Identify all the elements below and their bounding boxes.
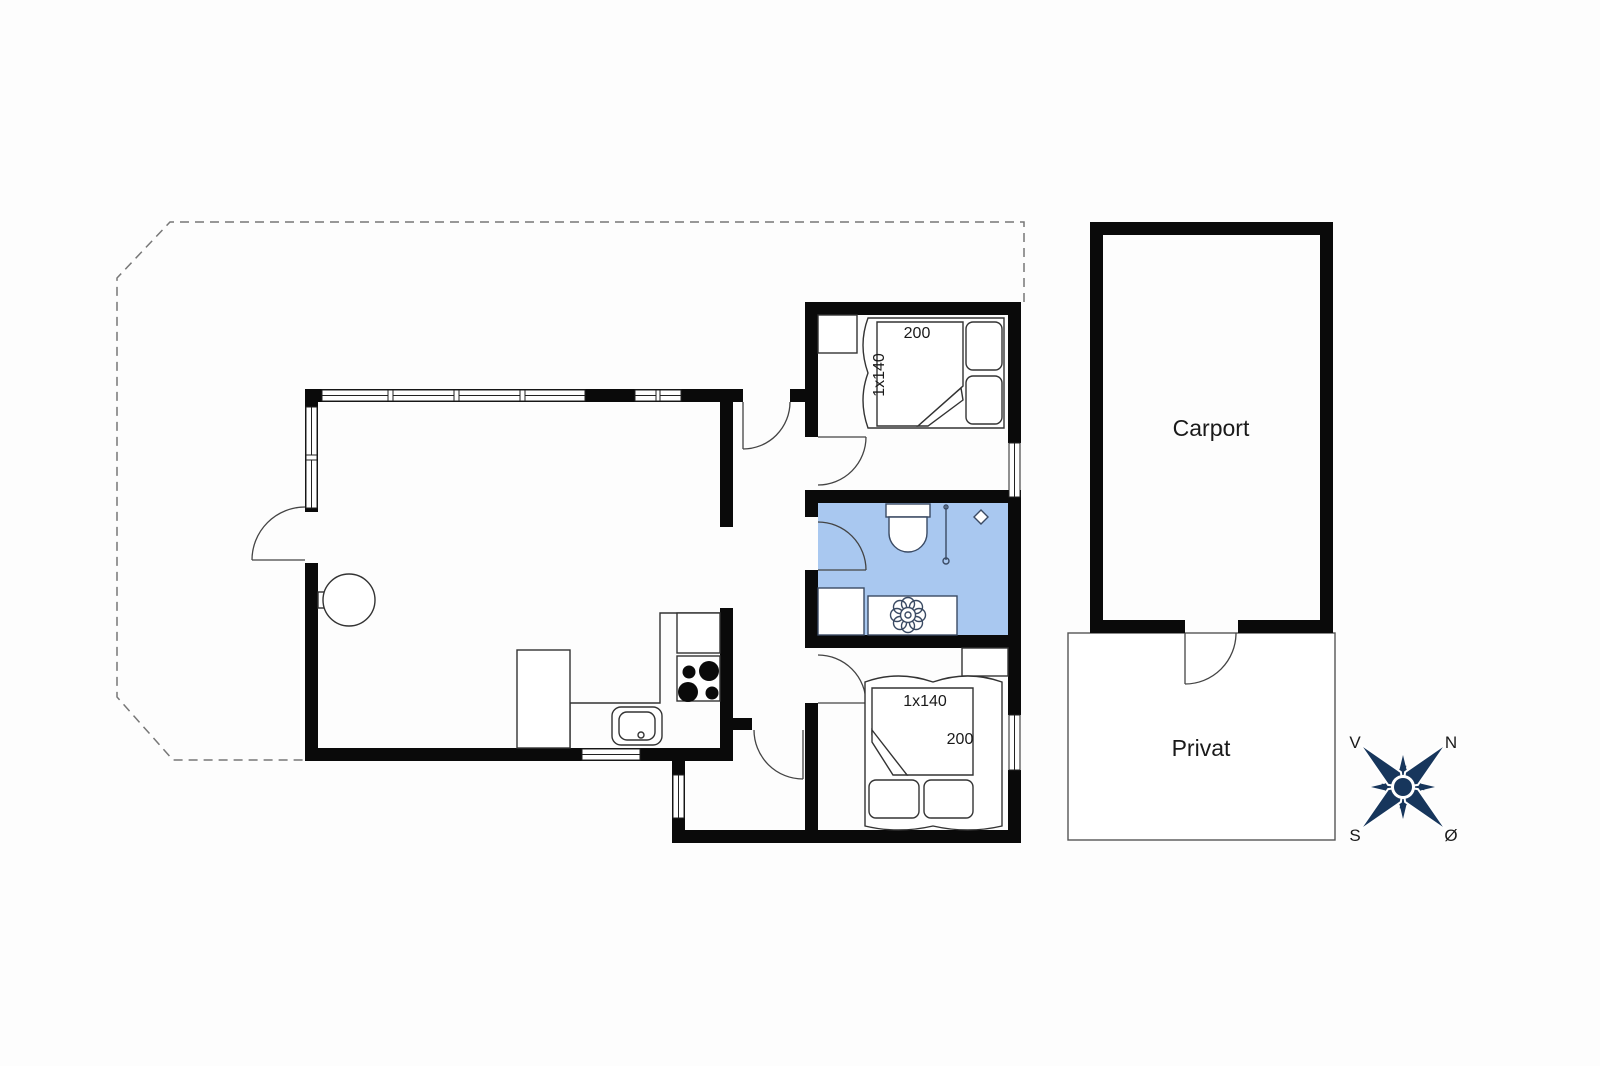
wall-segment (1090, 222, 1103, 633)
shelf (962, 648, 1008, 676)
shower-tray (818, 588, 864, 635)
window (1009, 715, 1020, 770)
terrace-door (743, 402, 790, 449)
privat-label: Privat (1172, 735, 1231, 761)
living-room (318, 574, 375, 626)
compass-east-label: Ø (1444, 826, 1457, 845)
bedroom-top: 200 1x140 (818, 315, 1004, 428)
bedroom-top-door (818, 437, 866, 485)
privat-area: Privat (1068, 633, 1335, 840)
double-bed: 200 1x140 (863, 318, 1004, 428)
kitchen (517, 613, 720, 748)
compass-west-label: V (1349, 733, 1361, 752)
toilet-icon (886, 504, 930, 552)
bed-length-label: 200 (947, 731, 974, 748)
wall-segment (1008, 497, 1021, 715)
compass-north-label: N (1445, 733, 1457, 752)
bedroom-bottom-door (818, 655, 866, 703)
wall-segment (805, 490, 818, 517)
bed-size-label: 1x140 (903, 693, 947, 710)
wall-segment (805, 635, 1021, 648)
kitchen-sink-icon (612, 707, 662, 745)
wall-segment (805, 490, 1021, 503)
wall-segment (672, 830, 1021, 843)
wall-segment (1090, 222, 1333, 235)
entrance-door (252, 507, 305, 560)
wall-segment (1090, 620, 1185, 633)
bedroom-bottom: 1x140 200 (865, 648, 1008, 830)
wall-segment (1008, 302, 1021, 443)
window (635, 390, 681, 401)
kitchen-island (517, 650, 570, 748)
wall-segment (1238, 620, 1333, 633)
window (322, 390, 585, 401)
wall-segment (305, 563, 318, 761)
wall-segment (805, 570, 818, 635)
window (673, 775, 684, 818)
wall-segment (305, 748, 733, 761)
double-bed: 1x140 200 (865, 676, 1002, 830)
window (306, 407, 317, 508)
wall-segment (805, 703, 818, 830)
closet (818, 315, 857, 353)
bed-length-label: 200 (904, 325, 931, 342)
wall-segment (730, 718, 752, 730)
wall-segment (1320, 222, 1333, 633)
wood-stove-icon (318, 574, 375, 626)
compass-rose-icon: V N S Ø (1349, 733, 1457, 845)
window (582, 749, 640, 760)
washbasin-icon (868, 596, 957, 635)
carport-label: Carport (1173, 415, 1250, 441)
bed-size-label: 1x140 (871, 353, 888, 397)
wall-segment (805, 302, 818, 437)
tall-cabinet (677, 613, 720, 653)
wall-segment (805, 302, 1021, 315)
cooktop-icon (677, 656, 720, 702)
window (1009, 443, 1020, 497)
compass-south-label: S (1349, 826, 1360, 845)
floor-plan-canvas: 200 1x140 1x140 200 Privat Carport (0, 0, 1600, 1066)
wall-segment (720, 608, 733, 756)
carport: Carport (1090, 222, 1333, 684)
vestibule-door (754, 730, 803, 779)
wall-segment (720, 402, 733, 527)
